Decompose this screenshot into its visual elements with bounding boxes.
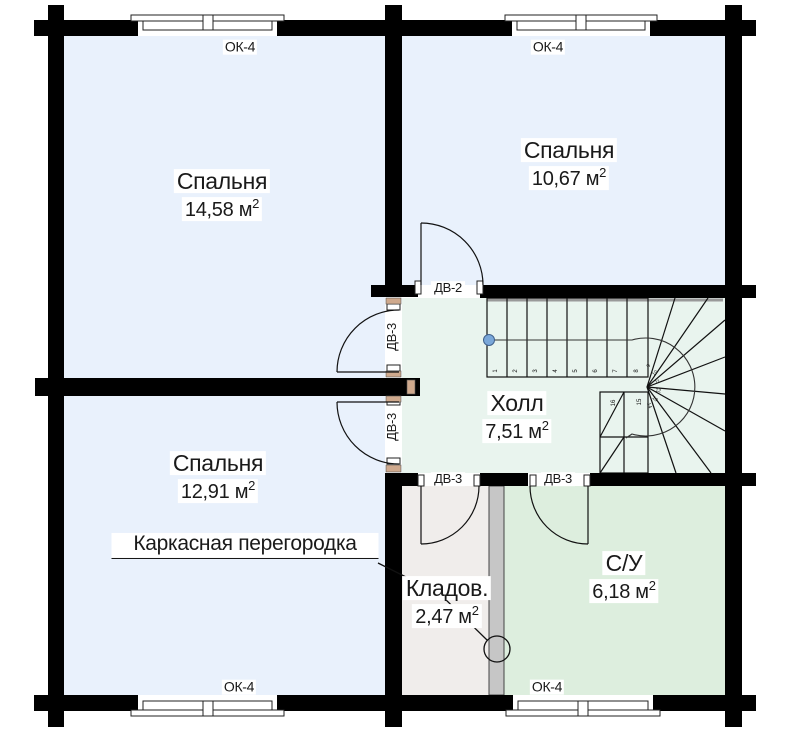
wall-interior-center-top bbox=[385, 5, 402, 297]
frame-partition bbox=[489, 486, 504, 695]
room-name: Кладов. bbox=[403, 576, 491, 600]
wall-interior-mid-left bbox=[35, 378, 420, 396]
room-name: С/У bbox=[603, 551, 646, 575]
label-window-bottom-left: ОК-4 bbox=[222, 680, 256, 695]
window-ok4-top-right bbox=[505, 15, 657, 36]
label-bedroom-top-left: Спальня 14,58 м2 bbox=[174, 169, 270, 221]
wall-joint-center bbox=[371, 285, 418, 297]
svg-text:16: 16 bbox=[611, 399, 617, 406]
room-hall bbox=[402, 298, 725, 473]
label-door-dv3-storage: ДВ-3 bbox=[431, 472, 465, 486]
window-ok4-bottom-left bbox=[131, 695, 284, 716]
partition-note: Каркасная перегородка bbox=[112, 533, 379, 559]
wall-hall-bottom-c bbox=[590, 473, 756, 486]
floor-plan: 1 2 3 4 5 6 7 8 9 10 11 12 13 14 15 16 bbox=[0, 0, 797, 753]
floor-plan-drawing: 1 2 3 4 5 6 7 8 9 10 11 12 13 14 15 16 bbox=[0, 0, 797, 753]
wall-exterior-left bbox=[48, 5, 64, 727]
stair-walk-start-dot bbox=[484, 335, 495, 346]
label-window-top-right: ОК-4 bbox=[531, 40, 565, 55]
label-bedroom-top-right: Спальня 10,67 м2 bbox=[521, 138, 617, 190]
svg-text:15: 15 bbox=[637, 398, 643, 405]
window-ok4-bottom-right bbox=[506, 695, 660, 716]
label-door-dv3-top: ДВ-3 bbox=[385, 320, 399, 354]
label-window-bottom-right: ОК-4 bbox=[530, 680, 564, 695]
label-bedroom-bottom-left: Спальня 12,91 м2 bbox=[170, 451, 266, 503]
label-door-dv3-bathroom: ДВ-3 bbox=[541, 472, 575, 486]
wall-hall-bottom-b bbox=[480, 473, 528, 486]
window-ok4-top-left bbox=[131, 15, 284, 36]
room-name: Спальня bbox=[170, 451, 266, 475]
wall-exterior-right bbox=[725, 5, 742, 727]
room-name: Холл bbox=[487, 391, 546, 415]
wall-bedroom-top-right-bottom bbox=[480, 285, 756, 298]
label-hall: Холл 7,51 м2 bbox=[482, 391, 551, 443]
label-bathroom: С/У 6,18 м2 bbox=[589, 551, 658, 603]
label-door-dv3-bottom: ДВ-3 bbox=[385, 410, 399, 444]
room-name: Спальня bbox=[174, 169, 270, 193]
label-storage: Кладов. 2,47 м2 bbox=[403, 576, 491, 628]
label-door-dv2: ДВ-2 bbox=[431, 281, 465, 295]
room-name: Спальня bbox=[521, 138, 617, 162]
label-window-top-left: ОК-4 bbox=[223, 40, 257, 55]
wall-interior-center-bottom bbox=[385, 473, 402, 727]
